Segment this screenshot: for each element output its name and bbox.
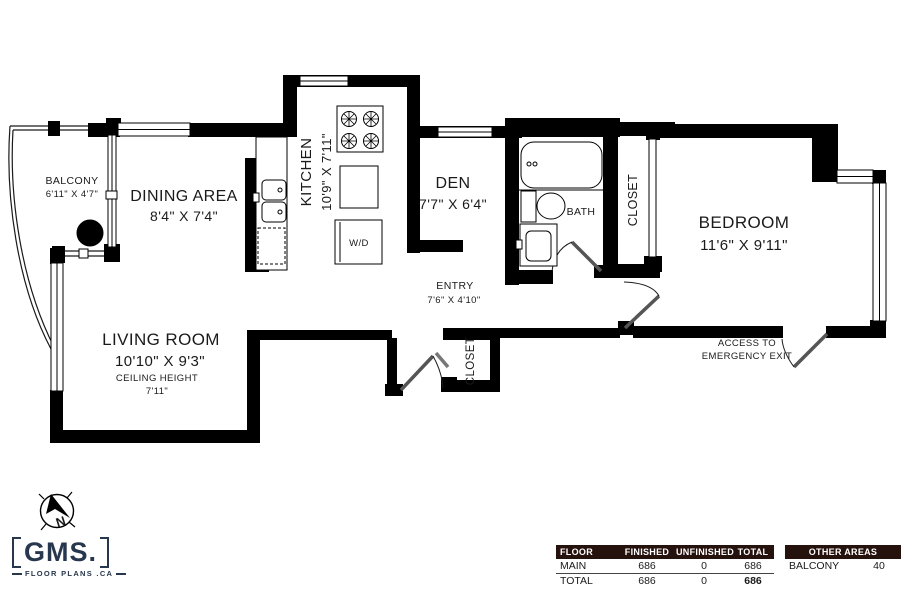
stove [337,106,383,152]
area-table-header: FLOOR FINISHED UNFINISHED TOTAL [556,545,774,559]
other-areas-header: OTHER AREAS [785,545,901,559]
gms-logo: GMS. FLOOR PLANS .CA [12,537,122,578]
bedroom-dims: 11'6" X 9'11" [700,237,788,254]
bedroom-label: BEDROOM [699,213,790,232]
table-row-main: MAIN 686 0 686 [556,559,774,574]
kitchen-label: KITCHEN [298,138,315,207]
col-finished: FINISHED [618,547,676,557]
den-label: DEN [436,175,471,192]
bathtub [519,142,603,190]
bedroom-top-window [837,170,873,183]
total-unfinished: 0 [676,575,732,587]
logo-text: GMS. [21,539,100,566]
dining-label: DINING AREA [130,188,238,205]
dining-dims: 8'4" X 7'4" [150,208,218,224]
den-window [438,127,492,137]
emergency-exit-note-2: EMERGENCY EXIT [702,351,792,362]
logo-rule-right [116,573,126,575]
bath-door [552,242,601,271]
main-unfinished: 0 [676,560,732,572]
col-floor: FLOOR [556,547,618,557]
compass: N [39,492,75,530]
toilet [521,191,565,222]
logo-tagline: FLOOR PLANS .CA [25,569,113,578]
emergency-exit-note-1: ACCESS TO [718,338,776,349]
bath-sink [516,224,557,266]
total-floor-label: TOTAL [556,575,618,587]
col-unfinished: UNFINISHED [676,547,732,557]
logo-left-bracket [12,537,21,568]
kitchen-cabinet [340,166,378,208]
other-areas-table: OTHER AREAS BALCONY 40 [785,545,901,573]
floor-plan-drawing: N BALCONY 6'11" X 4'7" DINING AREA 8'4" … [0,0,910,606]
front-door [401,356,443,390]
floor-plan-sheet: N BALCONY 6'11" X 4'7" DINING AREA 8'4" … [0,0,910,606]
washer-dryer-label: W/D [349,238,369,249]
kitchen-window [300,76,348,86]
ceiling-height-value: 7'11" [146,386,168,397]
main-floor-label: MAIN [556,560,618,572]
living-room-window [51,263,63,391]
other-areas-row: BALCONY 40 [785,559,901,573]
bedroom-closet-slider [649,139,656,257]
living-room-label: LIVING ROOM [102,330,220,349]
logo-right-bracket [100,537,109,568]
kitchen-dims: 10'9" X 7'11" [319,133,334,211]
bath-label: BATH [567,206,596,218]
slider-latch [106,191,117,199]
entry-closet-label: CLOSET [465,337,477,385]
entry-label: ENTRY [436,280,473,292]
other-area-label: BALCONY [785,560,857,572]
dining-window [118,123,190,136]
total-finished: 686 [618,575,676,587]
balcony-dims: 6'11" X 4'7" [46,189,99,200]
ceiling-height-label: CEILING HEIGHT [116,373,198,384]
main-finished: 686 [618,560,676,572]
balcony-label: BALCONY [46,175,99,187]
railing-joint [79,249,88,258]
den-dims: 7'7" X 6'4" [419,196,487,212]
living-room-dims: 10'10" X 9'3" [115,353,205,370]
other-area-value: 40 [857,560,901,572]
main-total: 686 [732,560,774,572]
entry-dims: 7'6" X 4'10" [427,295,480,306]
total-total: 686 [732,575,774,587]
area-summary-table: FLOOR FINISHED UNFINISHED TOTAL MAIN 686… [556,545,774,588]
col-total: TOTAL [732,547,774,557]
bath-closet-label: CLOSET [626,174,640,226]
other-areas-title: OTHER AREAS [785,547,901,557]
table-row-total: TOTAL 686 0 686 [556,574,774,588]
bedroom-side-window [873,183,886,321]
balcony-table [77,220,103,246]
logo-rule-left [12,573,22,575]
